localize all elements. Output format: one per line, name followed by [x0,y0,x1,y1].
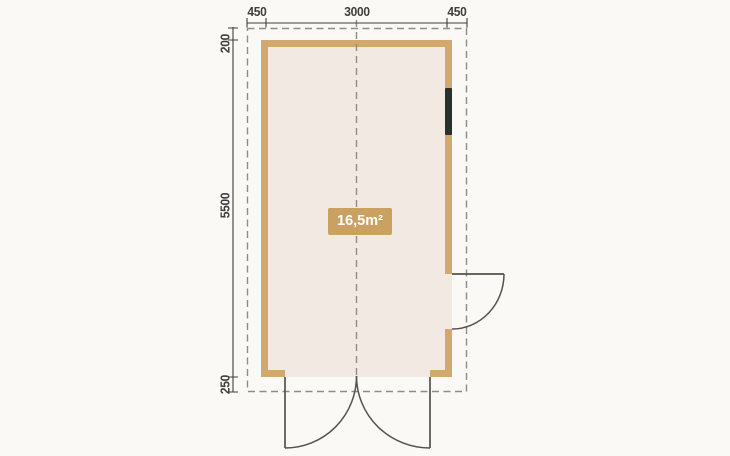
dim-top-right-overhang: 450 [437,4,477,19]
side-door-opening [444,274,452,329]
side-door-swing-arc [452,274,504,329]
double-door-opening [285,369,430,377]
dim-left-depth: 5500 [218,185,233,225]
dim-top-width: 3000 [337,4,377,19]
window [445,88,452,135]
dim-left-top-overhang: 200 [218,23,233,63]
dim-left-bottom-overhang: 250 [218,364,233,404]
double-door-right-swing-arc [357,376,431,448]
double-door-left-swing-arc [285,376,357,448]
dim-top-left-overhang: 450 [237,4,277,19]
floor-plan-canvas: 450 3000 450 200 5500 250 16,5m² [0,0,730,456]
top-dimension-line [247,18,467,28]
area-badge: 16,5m² [328,208,392,235]
